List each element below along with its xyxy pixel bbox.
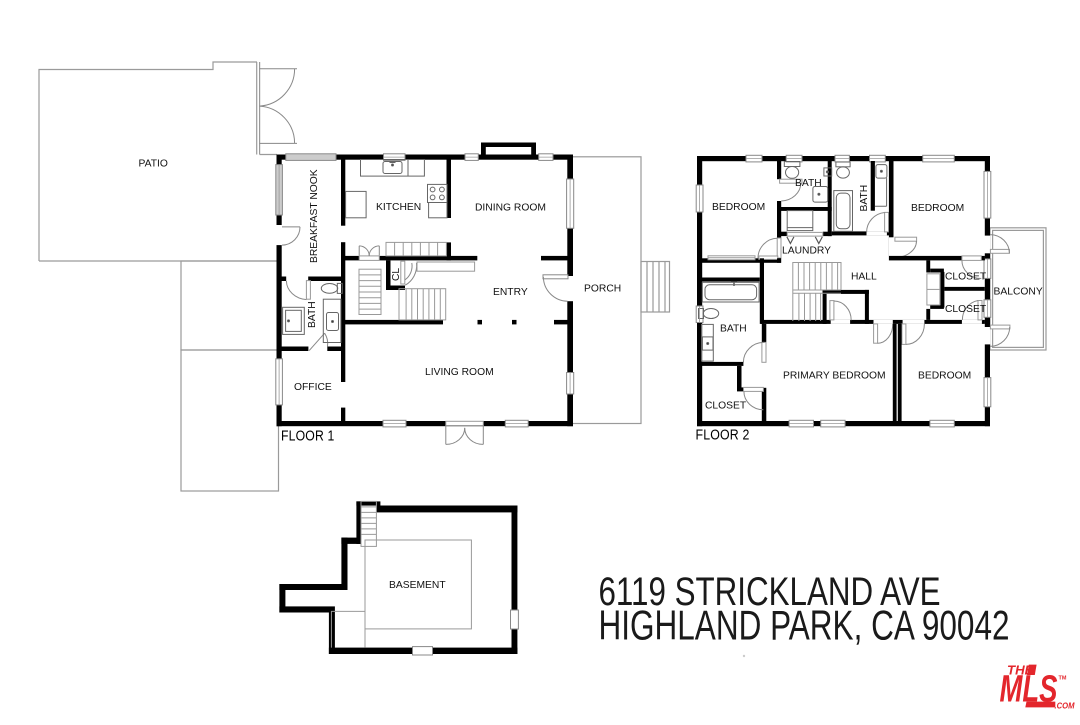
svg-text:BATH: BATH	[795, 178, 822, 189]
svg-text:HALL: HALL	[851, 272, 877, 283]
svg-text:BATH: BATH	[859, 185, 870, 212]
svg-text:FLOOR 2: FLOOR 2	[696, 427, 750, 444]
svg-text:.COM: .COM	[1055, 701, 1076, 711]
svg-text:PATIO: PATIO	[139, 159, 168, 170]
svg-text:CLOSET: CLOSET	[705, 401, 747, 412]
svg-text:CLOSET: CLOSET	[945, 304, 987, 315]
svg-text:HIGHLAND PARK, CA 90042: HIGHLAND PARK, CA 90042	[599, 602, 1010, 649]
svg-text:BEDROOM: BEDROOM	[712, 202, 765, 213]
svg-text:PORCH: PORCH	[584, 284, 621, 295]
svg-text:LAUNDRY: LAUNDRY	[782, 246, 831, 257]
svg-text:TM: TM	[1059, 676, 1067, 682]
svg-text:BATH: BATH	[307, 301, 318, 328]
svg-text:CL: CL	[391, 268, 402, 281]
svg-text:BEDROOM: BEDROOM	[911, 203, 964, 214]
svg-text:BREAKFAST NOOK: BREAKFAST NOOK	[309, 169, 320, 263]
svg-text:PRIMARY BEDROOM: PRIMARY BEDROOM	[783, 371, 886, 382]
svg-text:CLOSET: CLOSET	[945, 272, 987, 283]
svg-text:OFFICE: OFFICE	[294, 382, 332, 393]
svg-text:BATH: BATH	[720, 324, 747, 335]
svg-text:BEDROOM: BEDROOM	[918, 371, 971, 382]
svg-text:ENTRY: ENTRY	[493, 287, 528, 298]
svg-text:FLOOR 1: FLOOR 1	[281, 428, 335, 445]
svg-text:BASEMENT: BASEMENT	[389, 580, 446, 591]
svg-text:DINING ROOM: DINING ROOM	[475, 203, 546, 214]
svg-text:LIVING ROOM: LIVING ROOM	[425, 367, 494, 378]
svg-text:KITCHEN: KITCHEN	[376, 202, 421, 213]
svg-text:BALCONY: BALCONY	[994, 287, 1043, 298]
